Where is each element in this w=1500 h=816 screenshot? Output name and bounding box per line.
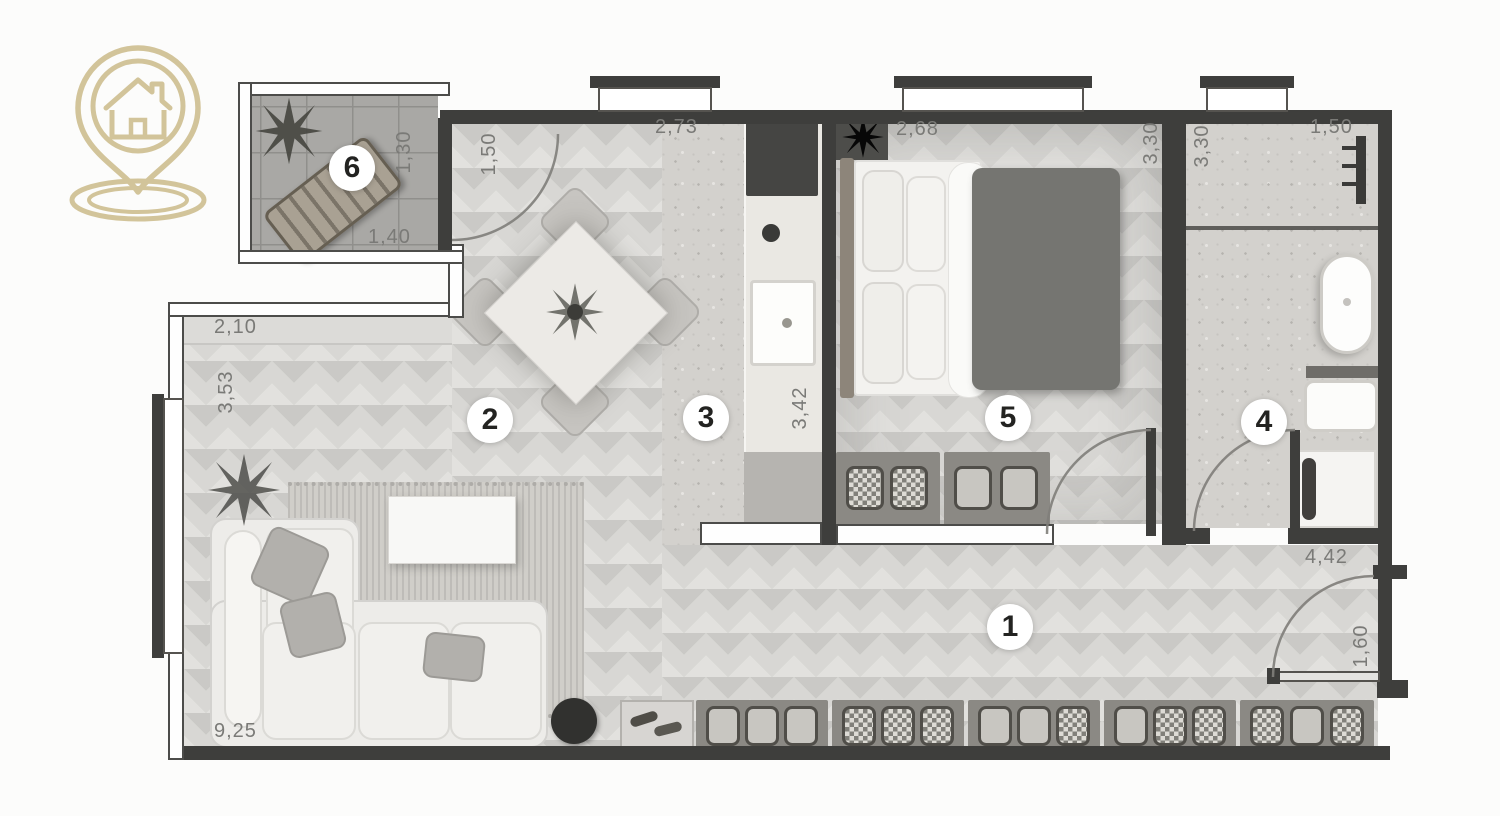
room-badge-balcony: 6: [329, 145, 375, 191]
room-number: 4: [1256, 405, 1273, 439]
dim-balcony-width: 1,40: [368, 226, 411, 249]
dim-bathroom-left: 3,30: [1191, 114, 1213, 178]
room-badge-bedroom: 5: [985, 395, 1031, 441]
room-number: 6: [344, 151, 361, 185]
room-badge-kitchen: 3: [683, 395, 729, 441]
dim-living-bottom: 9,25: [214, 720, 257, 743]
dim-bedroom-right: 3,30: [1140, 111, 1162, 175]
dim-kitchen-counter: 3,42: [789, 376, 811, 440]
room-number: 3: [698, 401, 715, 435]
dim-living-entry: 1,50: [478, 122, 500, 186]
room-badge-bathroom: 4: [1241, 399, 1287, 445]
bedroom-door-arc: [1047, 430, 1151, 534]
room-badge-hallway: 1: [987, 604, 1033, 650]
dim-hallway-width: 4,42: [1305, 546, 1348, 569]
balcony-door-arc: [452, 134, 558, 240]
dim-kitchen-top: 2,73: [655, 116, 698, 139]
dim-living-left: 3,53: [215, 360, 237, 424]
floorplan-page: 1 2 3 4 5 6 2,10 2,73 2,68 1,50 1,40 9,2…: [0, 0, 1500, 816]
room-number: 2: [482, 403, 499, 437]
dim-bathroom-top: 1,50: [1310, 116, 1353, 139]
dim-living-top: 2,10: [214, 316, 257, 339]
room-badge-living: 2: [467, 397, 513, 443]
dim-bedroom-top: 2,68: [896, 118, 939, 141]
room-number: 5: [1000, 401, 1017, 435]
bathroom-door-arc: [1194, 430, 1295, 531]
dim-entrance-width: 1,60: [1350, 614, 1372, 678]
dim-balcony-depth: 1,30: [393, 120, 415, 184]
room-number: 1: [1002, 610, 1019, 644]
